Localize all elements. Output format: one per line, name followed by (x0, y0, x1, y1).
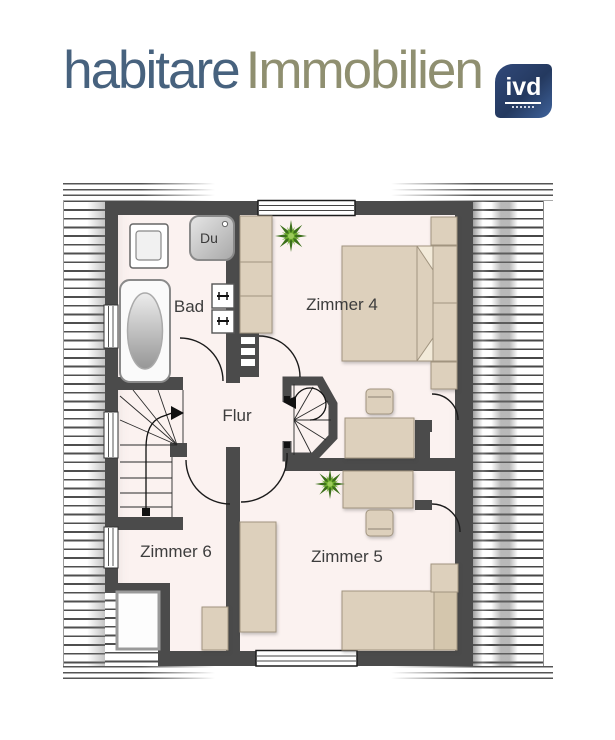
wardrobe-zimmer5 (240, 522, 276, 632)
sink-bottom (212, 310, 234, 333)
door-arc-zimmer5-hall (241, 453, 287, 502)
wall-z5-door-stub (415, 500, 432, 510)
sink-top (212, 284, 234, 308)
door-arc-zimmer4 (432, 394, 458, 420)
window-left-zimmer6 (104, 527, 118, 568)
floorplan-page: habitareImmobilien ivd (0, 0, 615, 740)
nightstand-lower (431, 362, 457, 389)
cabinet-zimmer6 (202, 607, 228, 650)
window-bottom (256, 651, 357, 667)
window-top (258, 201, 355, 216)
door-arc-zimmer6 (186, 460, 230, 504)
desk-zimmer4 (345, 418, 414, 458)
room-label-bad: Bad (174, 297, 204, 316)
floorplan-canvas: Du (0, 0, 615, 740)
chair-zimmer5 (366, 510, 393, 536)
shower: Du (190, 216, 234, 260)
room-label-zimmer4: Zimmer 4 (306, 295, 378, 314)
door-arc-bad (180, 338, 223, 381)
roof-window-notch (117, 592, 159, 649)
shower-label: Du (200, 230, 218, 246)
toilet (130, 224, 168, 268)
nightstand-zimmer5 (431, 564, 458, 592)
spiral-staircase (283, 381, 333, 457)
door-arc-zimmer4-vestibule (259, 336, 300, 377)
chair-zimmer4 (366, 389, 393, 414)
wardrobe-zimmer4 (240, 216, 272, 333)
room-label-flur: Flur (222, 406, 252, 425)
stair-start-dot (142, 508, 150, 516)
wall-right (455, 201, 473, 666)
plan-drawing: Du (0, 0, 615, 740)
window-left-bath (104, 305, 118, 348)
room-label-zimmer6: Zimmer 6 (140, 542, 212, 561)
plant-icon-top (275, 220, 307, 252)
desk-zimmer5 (343, 471, 413, 508)
window-left-stair (104, 412, 118, 458)
single-bed (342, 591, 457, 650)
stair-up-arrow (171, 406, 184, 420)
radiator (237, 330, 259, 377)
plant-icon-bottom (315, 469, 345, 499)
nightstand-upper (431, 217, 457, 245)
wall-z4-door-corner (415, 420, 430, 458)
room-label-zimmer5: Zimmer 5 (311, 547, 383, 566)
bathtub (120, 280, 170, 382)
